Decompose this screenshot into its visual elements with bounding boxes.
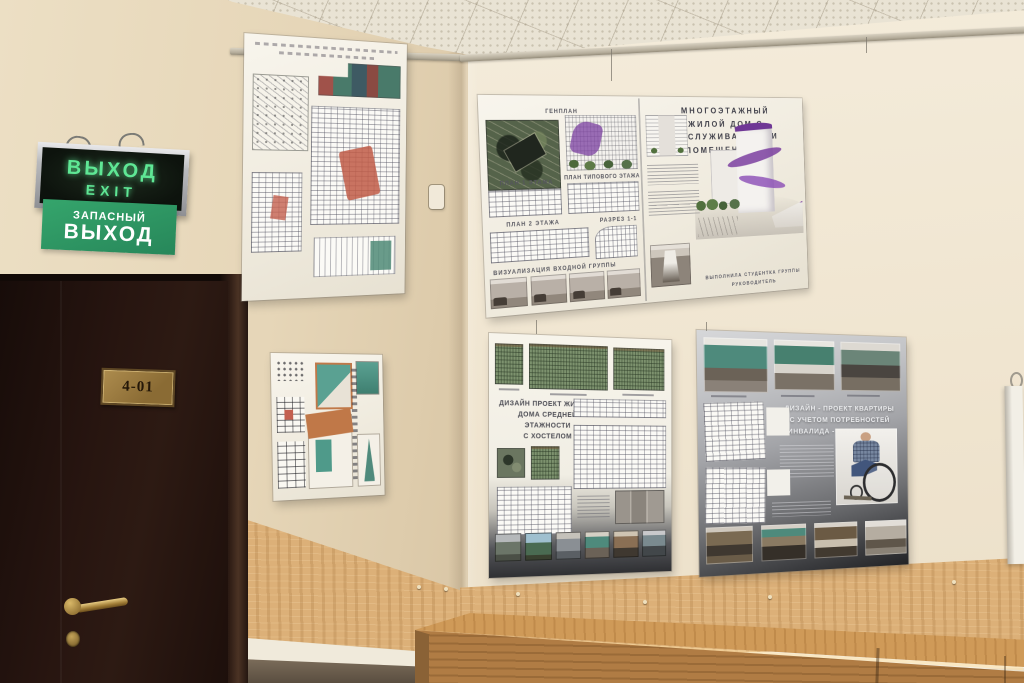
lobby-render-thumbnail xyxy=(607,268,641,299)
mini-building-render xyxy=(645,115,688,156)
floor-plan-drawing xyxy=(310,105,400,225)
floor-plan-drawing xyxy=(568,181,640,213)
description-text-block xyxy=(648,190,700,219)
screw-cap xyxy=(643,600,647,604)
person-plaid-shirt-shape xyxy=(853,440,880,462)
section-drawing xyxy=(594,225,638,259)
poster-hanging-wire xyxy=(536,320,537,334)
door-panel-seam xyxy=(60,281,62,683)
render-furniture-shape xyxy=(610,287,622,295)
site-plan-thumbnail xyxy=(497,448,526,477)
floor-plan-drawing xyxy=(488,188,562,217)
section-label: РАЗРЕЗ 1-1 xyxy=(597,217,640,225)
door-keyhole xyxy=(66,631,80,647)
caption-strip xyxy=(622,393,654,396)
poster-left-sheet: ГЕНПЛАН ПЛАН 1 ЭТАЖА ПЛАН ТИПОВОГО ЭТАЖА… xyxy=(478,95,646,318)
interior-render-thumbnail xyxy=(761,523,806,561)
green-facade-elevation xyxy=(614,347,665,390)
caption-strip xyxy=(550,393,587,396)
floor-plan-drawing xyxy=(497,487,572,537)
description-text-block xyxy=(647,163,699,185)
green-facade-elevation xyxy=(531,446,559,480)
photo-thumbnail xyxy=(585,531,610,559)
emergency-exit-line2: ВЫХОД xyxy=(63,220,154,245)
photo-thumbnail xyxy=(495,533,522,562)
building-footprint-shape xyxy=(504,133,546,172)
house-elevation-drawing xyxy=(315,362,353,409)
photo-scene: 4-01 ВЫХОД EXIT ЗАПАСНЫЙ ВЫХОД xyxy=(0,0,1024,683)
sketch-marks xyxy=(275,360,305,381)
screw-cap xyxy=(444,587,448,591)
lobby-render-thumbnail xyxy=(490,277,528,310)
description-text-block xyxy=(772,501,831,517)
render-trees xyxy=(694,194,746,213)
floor-plan-drawing xyxy=(490,228,589,264)
plan-courtyard-accent xyxy=(339,145,381,200)
interior-render-thumbnail xyxy=(706,525,753,564)
purple-facade-accent xyxy=(569,118,603,157)
exit-sign-text-en: EXIT xyxy=(85,182,137,201)
plan-accent xyxy=(285,410,294,421)
desk-left-side xyxy=(415,630,429,683)
render-parking-lines xyxy=(697,216,738,237)
corridor-perspective-shape xyxy=(661,250,679,283)
door-handle-rose xyxy=(64,598,81,615)
plan-accent xyxy=(270,195,289,221)
screw-cap xyxy=(768,595,772,599)
poster-hanging-wire xyxy=(866,37,867,53)
photo-thumbnail xyxy=(525,532,551,560)
floor-plan-drawing xyxy=(251,172,303,252)
building-elevation-render xyxy=(565,115,638,171)
house-window-shape xyxy=(316,440,332,472)
door xyxy=(0,281,228,683)
render-furniture-shape xyxy=(573,290,585,298)
colored-elevation-drawing xyxy=(318,62,400,99)
caption-strip xyxy=(847,395,879,397)
interior-render-thumbnail xyxy=(774,340,835,391)
floor-plan-drawing xyxy=(276,397,304,433)
lobby-render-thumbnail xyxy=(569,271,604,302)
floor-plan-drawing xyxy=(277,441,306,489)
wheelchair-user-photo xyxy=(836,428,898,505)
lobby-render-thumbnail xyxy=(530,274,567,306)
corridor-photo xyxy=(650,242,691,288)
emergency-exit-sign: ЗАПАСНЫЙ ВЫХОД xyxy=(41,199,177,255)
door-plaque-number: 4-01 xyxy=(122,378,154,396)
poster-wheelchair-apartment: ДИЗАЙН - ПРОЕКТ КВАРТИРЫ С УЧЕТОМ ПОТРЕБ… xyxy=(697,330,909,577)
interior-render-thumbnail xyxy=(841,342,901,392)
caption-strip xyxy=(499,388,520,390)
building-perspective-render xyxy=(692,121,804,242)
illegible-title-strip xyxy=(255,42,398,54)
caption-strip xyxy=(781,395,815,397)
tower-triangle-shape xyxy=(364,438,375,481)
section-strip-drawing xyxy=(574,398,666,418)
house-roof-shape xyxy=(306,408,354,439)
apartment-plan-card xyxy=(705,468,765,525)
interior-render-thumbnail xyxy=(865,519,906,555)
screw-cap xyxy=(516,592,520,596)
typical-plan-label: ПЛАН ТИПОВОГО ЭТАЖА xyxy=(564,173,638,181)
poster-hand-drawn-project xyxy=(242,33,407,301)
wall-corner xyxy=(448,40,478,610)
render-furniture-shape xyxy=(494,297,507,306)
green-facade-elevation xyxy=(495,343,524,385)
exit-sign-text-ru: ВЫХОД xyxy=(66,156,159,184)
desk-seam xyxy=(1004,656,1006,683)
screw-cap xyxy=(952,580,956,584)
photo-thumbnail xyxy=(555,532,581,560)
poster-edge-at-frame xyxy=(1004,386,1024,564)
poster-right-sheet: МНОГОЭТАЖНЫЙ ЖИЛОЙ ДОМ С ОБСЛУЖИВАЮЩИМИ … xyxy=(639,97,808,303)
wall-sensor-device xyxy=(429,185,444,209)
render-furniture-shape xyxy=(534,293,547,302)
caption-strip xyxy=(711,396,747,398)
interior-strip-render xyxy=(615,490,664,523)
green-facade-elevation xyxy=(529,343,608,391)
tower-detail-drawing xyxy=(357,433,381,486)
poster-hanging-wire xyxy=(611,49,612,81)
window-detail-drawing xyxy=(356,361,380,394)
screw-cap xyxy=(417,585,421,589)
site-plan-drawing xyxy=(252,74,309,152)
poster-house-project xyxy=(271,353,385,501)
photo-thumbnail xyxy=(614,530,639,558)
interior-render-thumbnail xyxy=(703,338,768,393)
illegible-title-strip xyxy=(279,51,376,60)
poster-hostel-house: ДИЗАЙН ПРОЕКТ ЖИЛОГО ДОМА СРЕДНЕЙ ЭТАЖНО… xyxy=(489,333,671,578)
specification-table xyxy=(766,407,790,436)
specification-table xyxy=(767,469,791,496)
section-accent xyxy=(370,241,391,270)
poster-hanging-wire xyxy=(706,322,707,331)
wheelchair-footboard xyxy=(844,496,872,501)
specification-text-block xyxy=(577,496,610,520)
section-drawing xyxy=(313,236,396,277)
apartment-plan-card xyxy=(703,401,765,462)
photo-thumbnail xyxy=(642,529,666,556)
door-plaque: 4-01 xyxy=(100,368,175,408)
interior-render-thumbnail xyxy=(814,521,857,558)
poster-credits: ВЫПОЛНИЛА СТУДЕНТКА ГРУППЫ РУКОВОДИТЕЛЬ xyxy=(701,267,806,293)
house-perspective-drawing xyxy=(308,414,353,489)
poster-multistory-house: ГЕНПЛАН ПЛАН 1 ЭТАЖА ПЛАН ТИПОВОГО ЭТАЖА… xyxy=(478,95,809,318)
floor-plan-drawing xyxy=(574,424,666,488)
